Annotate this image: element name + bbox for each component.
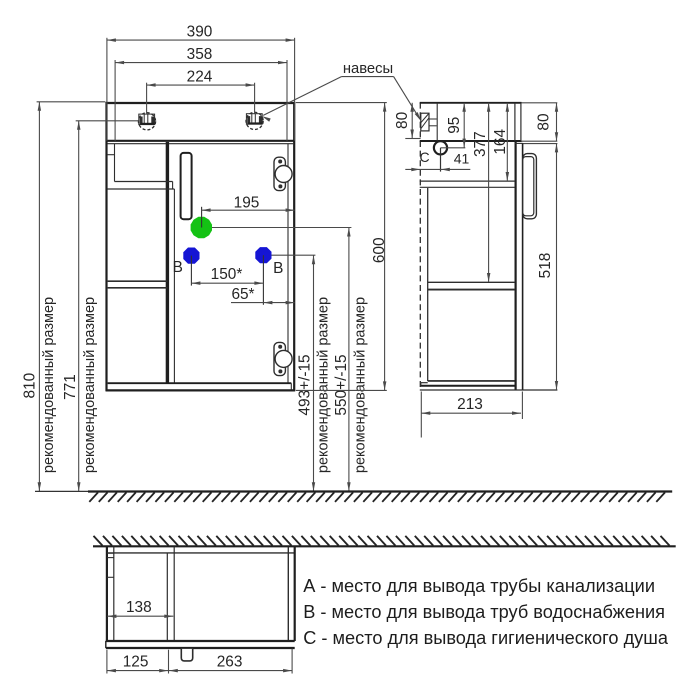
svg-text:рекомендованный размер: рекомендованный размер [41, 297, 57, 473]
svg-text:263: 263 [217, 654, 243, 671]
svg-text:150*: 150* [211, 266, 243, 283]
svg-text:80: 80 [394, 112, 411, 129]
svg-text:358: 358 [187, 46, 213, 63]
svg-text:B: B [273, 260, 283, 277]
svg-text:771: 771 [62, 374, 79, 400]
svg-text:224: 224 [187, 68, 213, 85]
svg-text:95: 95 [446, 117, 463, 134]
svg-text:550+/-15: 550+/-15 [333, 354, 350, 415]
svg-text:518: 518 [537, 253, 554, 279]
svg-text:390: 390 [187, 24, 213, 41]
svg-text:41: 41 [454, 150, 470, 166]
svg-text:213: 213 [457, 396, 483, 413]
svg-text:493+/-15: 493+/-15 [296, 354, 313, 415]
svg-text:В - место для вывода труб водо: В - место для вывода труб водоснабжения [303, 602, 665, 622]
svg-text:80: 80 [535, 113, 552, 130]
svg-text:65*: 65* [231, 286, 254, 303]
svg-text:125: 125 [123, 654, 149, 671]
svg-text:600: 600 [371, 237, 388, 263]
svg-text:164: 164 [492, 129, 509, 155]
svg-text:377: 377 [472, 131, 489, 157]
svg-text:рекомендованный размер: рекомендованный размер [316, 297, 332, 473]
svg-text:С - место для вывода гигиениче: С - место для вывода гигиенического душа [303, 628, 669, 648]
svg-text:810: 810 [21, 373, 38, 399]
svg-text:А - место для вывода трубы кан: А - место для вывода трубы канализации [303, 576, 655, 596]
svg-text:C: C [420, 149, 430, 165]
svg-text:рекомендованный размер: рекомендованный размер [82, 297, 98, 473]
svg-text:195: 195 [234, 194, 260, 211]
svg-text:B: B [173, 259, 183, 276]
svg-text:навесы: навесы [343, 61, 393, 77]
svg-text:рекомендованный размер: рекомендованный размер [353, 297, 369, 473]
svg-text:138: 138 [126, 599, 152, 616]
